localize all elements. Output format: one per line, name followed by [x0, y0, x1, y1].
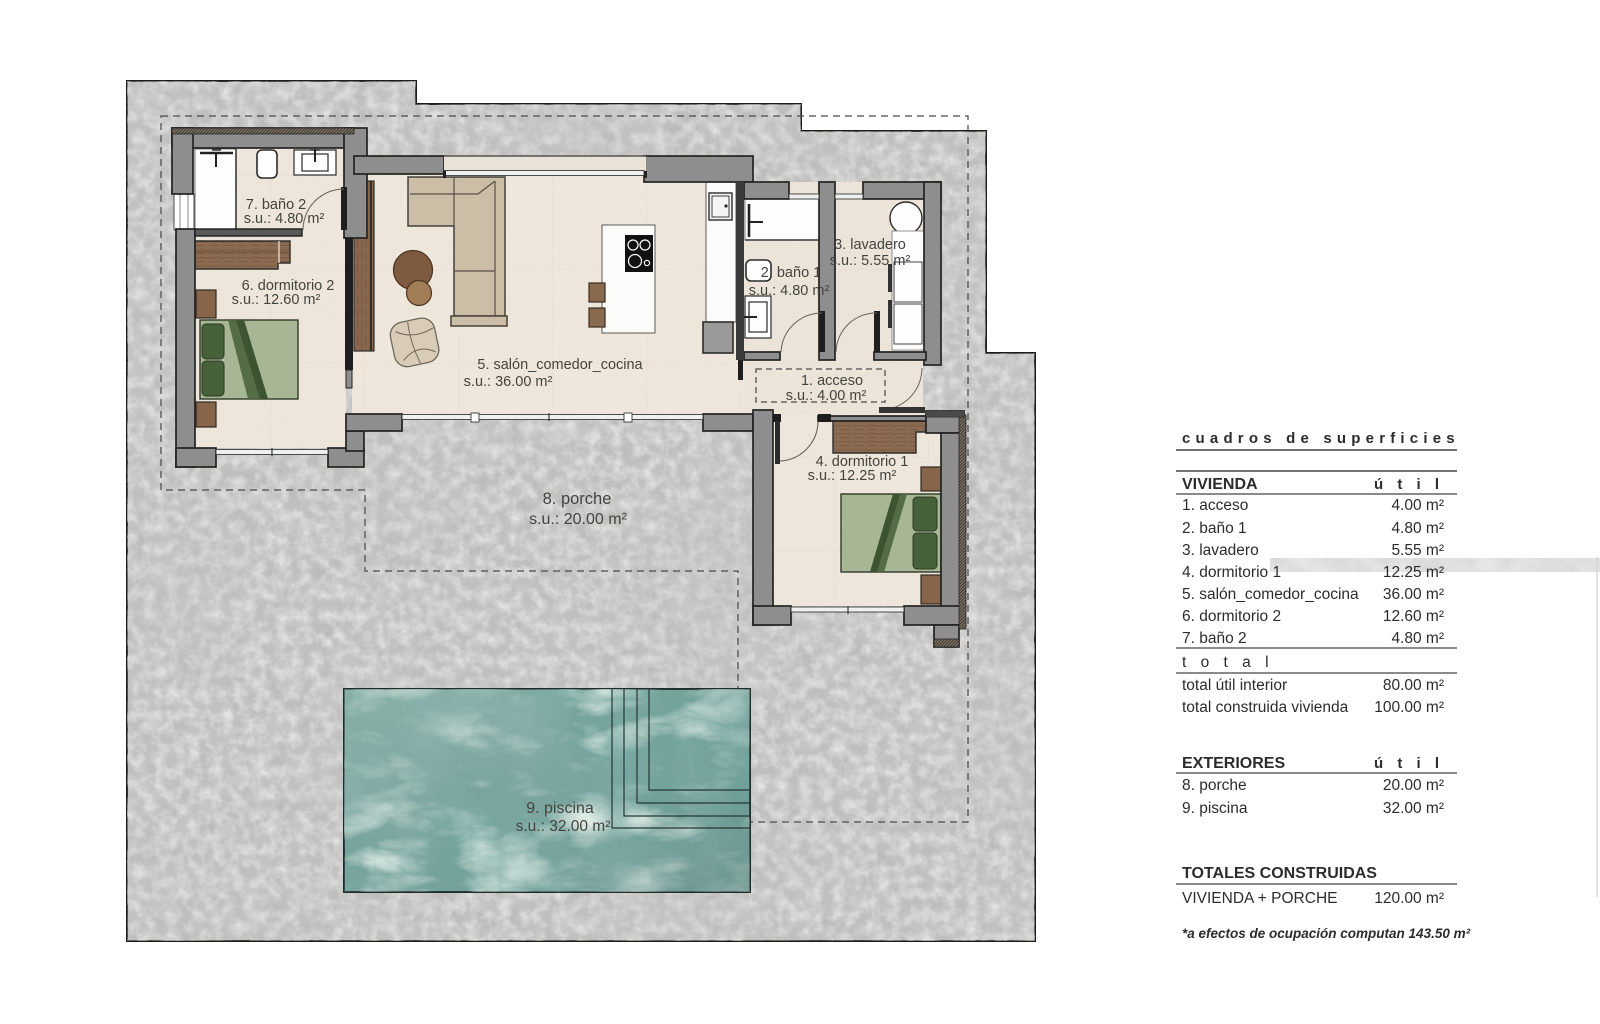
svg-text:s.u.: 5.55 m²: s.u.: 5.55 m² [830, 253, 911, 269]
svg-text:s.u.: 4.80 m²: s.u.: 4.80 m² [749, 283, 830, 299]
svg-text:80.00 m²: 80.00 m² [1383, 677, 1444, 694]
svg-text:9. piscina: 9. piscina [1182, 800, 1248, 817]
svg-text:s.u.: 20.00 m²: s.u.: 20.00 m² [529, 511, 627, 528]
svg-text:12.25 m²: 12.25 m² [1383, 564, 1444, 581]
svg-text:1. acceso: 1. acceso [801, 373, 863, 389]
svg-text:32.00 m²: 32.00 m² [1383, 800, 1444, 817]
svg-text:VIVIENDA: VIVIENDA [1182, 476, 1258, 493]
svg-text:TOTALES CONSTRUIDAS: TOTALES CONSTRUIDAS [1182, 865, 1377, 882]
svg-text:s.u.: 4.00 m²: s.u.: 4.00 m² [786, 388, 867, 404]
svg-text:VIVIENDA + PORCHE: VIVIENDA + PORCHE [1182, 890, 1337, 907]
svg-text:5. salón_comedor_cocina: 5. salón_comedor_cocina [477, 357, 643, 373]
svg-text:5.55 m²: 5.55 m² [1391, 542, 1444, 559]
svg-text:5. salón_comedor_cocina: 5. salón_comedor_cocina [1182, 586, 1359, 603]
svg-text:7. baño 2: 7. baño 2 [1182, 630, 1247, 647]
svg-text:3. lavadero: 3. lavadero [834, 237, 906, 253]
svg-text:total útil interior: total útil interior [1182, 677, 1287, 694]
svg-text:cuadros de superficies: cuadros de superficies [1182, 430, 1460, 447]
svg-text:EXTERIORES: EXTERIORES [1182, 755, 1285, 772]
svg-text:s.u.: 4.80 m²: s.u.: 4.80 m² [244, 211, 325, 227]
svg-text:1. acceso: 1. acceso [1182, 497, 1248, 514]
svg-text:20.00 m²: 20.00 m² [1383, 777, 1444, 794]
svg-text:12.60 m²: 12.60 m² [1383, 608, 1444, 625]
svg-text:total construida vivienda: total construida vivienda [1182, 699, 1349, 716]
svg-text:36.00 m²: 36.00 m² [1383, 586, 1444, 603]
svg-text:120.00 m²: 120.00 m² [1374, 890, 1444, 907]
svg-text:4. dormitorio 1: 4. dormitorio 1 [1182, 564, 1281, 581]
svg-text:ú t i l: ú t i l [1374, 755, 1444, 772]
svg-text:s.u.: 32.00 m²: s.u.: 32.00 m² [516, 818, 611, 835]
svg-text:8. porche: 8. porche [543, 490, 612, 508]
svg-text:8. porche: 8. porche [1182, 777, 1247, 794]
svg-text:*a efectos de ocupación comput: *a efectos de ocupación computan 143.50 … [1182, 926, 1471, 941]
svg-text:s.u.: 36.00 m²: s.u.: 36.00 m² [464, 374, 553, 390]
svg-text:s.u.: 12.60 m²: s.u.: 12.60 m² [232, 292, 321, 308]
svg-text:3. lavadero: 3. lavadero [1182, 542, 1259, 559]
svg-text:4.00 m²: 4.00 m² [1391, 497, 1444, 514]
svg-text:4.80 m²: 4.80 m² [1391, 520, 1444, 537]
svg-text:9. piscina: 9. piscina [526, 800, 594, 817]
svg-text:6. dormitorio 2: 6. dormitorio 2 [1182, 608, 1281, 625]
svg-text:t o t a l: t o t a l [1182, 654, 1274, 671]
svg-text:2. baño 1: 2. baño 1 [1182, 520, 1247, 537]
svg-text:4.80 m²: 4.80 m² [1391, 630, 1444, 647]
svg-text:s.u.: 12.25 m²: s.u.: 12.25 m² [808, 468, 897, 484]
svg-text:ú t i l: ú t i l [1374, 476, 1444, 493]
svg-text:2. baño 1: 2. baño 1 [761, 265, 821, 281]
svg-text:100.00 m²: 100.00 m² [1374, 699, 1444, 716]
